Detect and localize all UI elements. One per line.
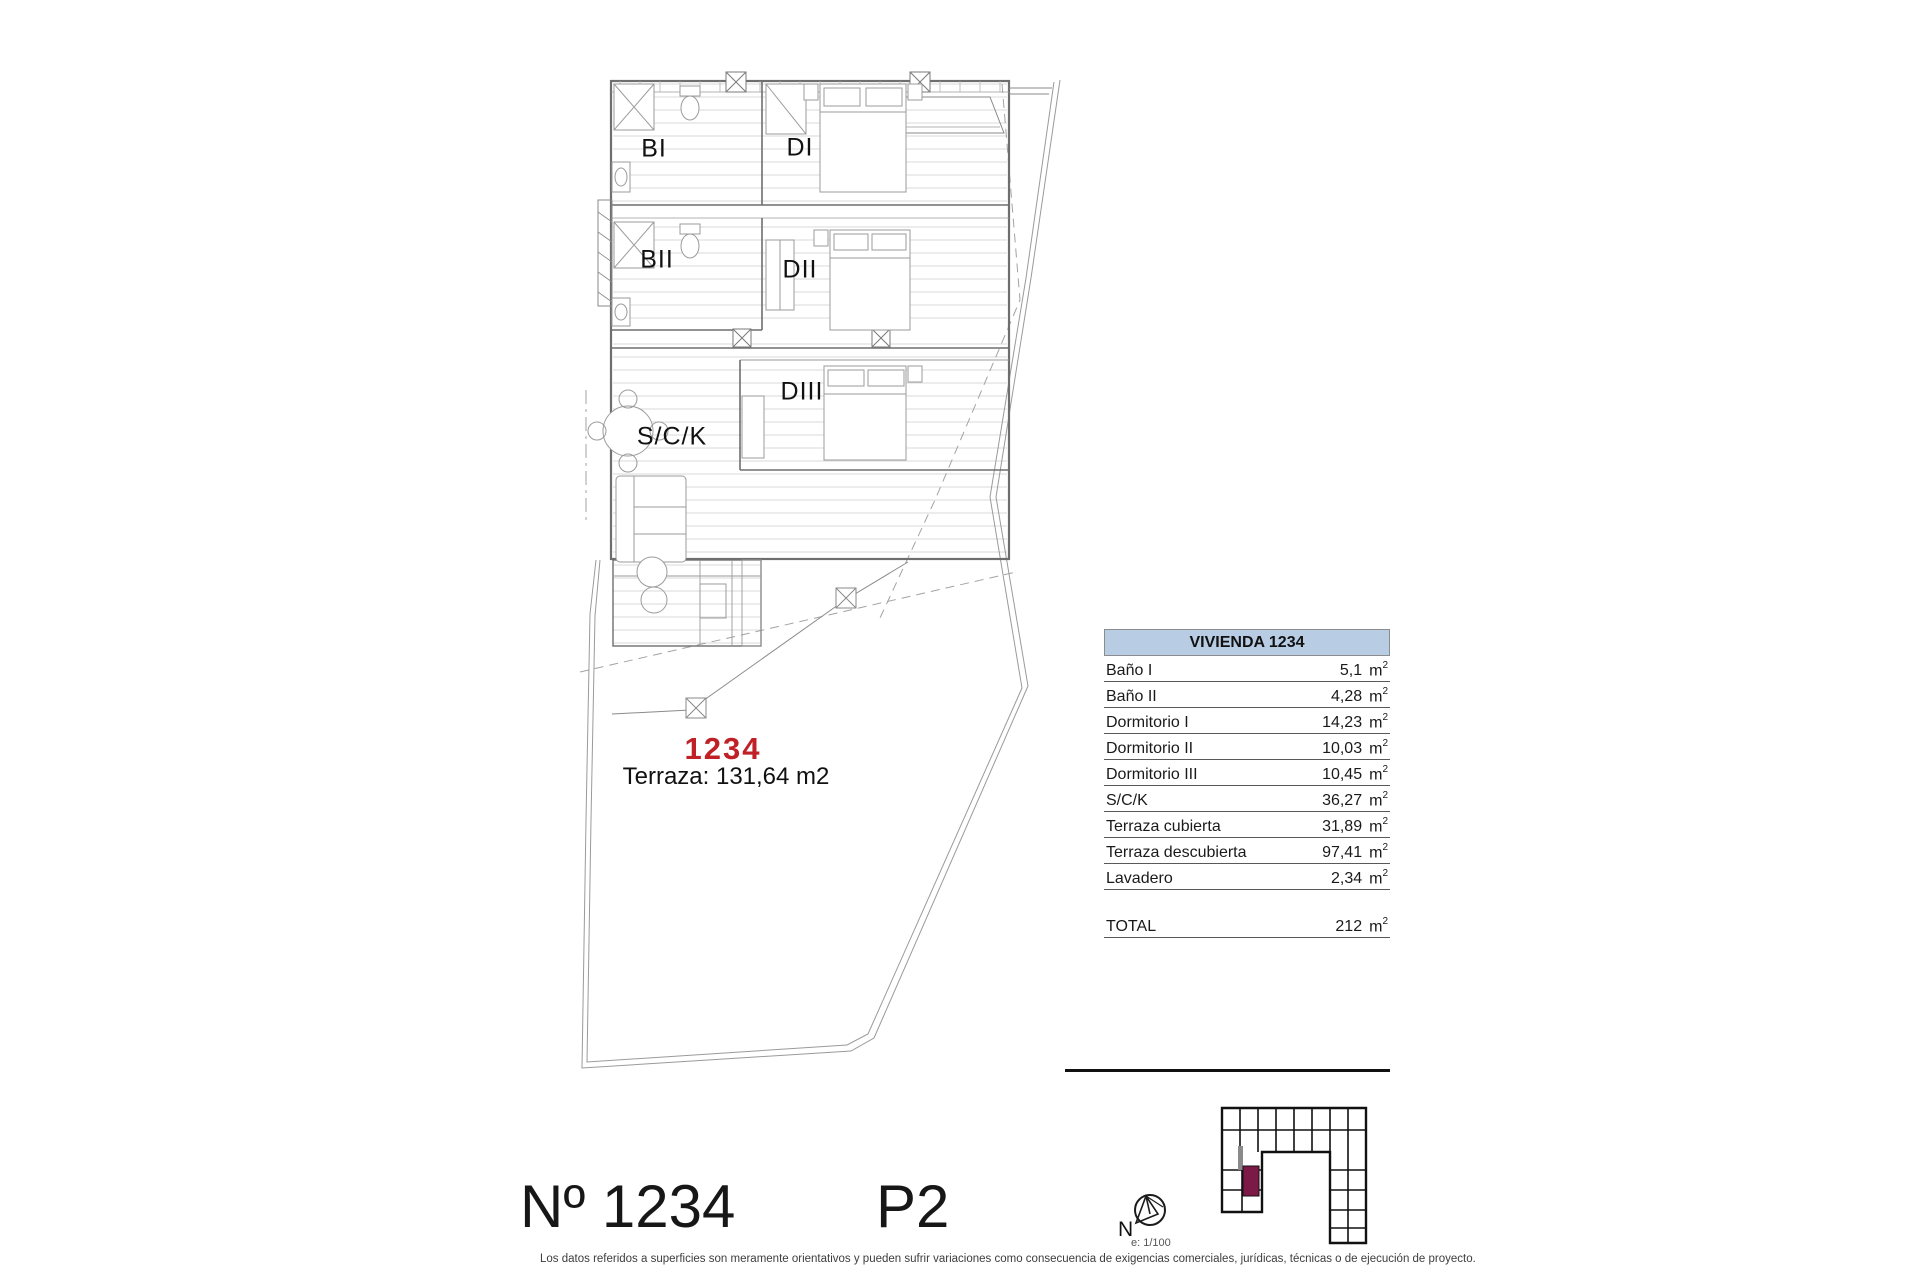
room-label-sck: S/C/K: [637, 423, 707, 452]
divider-rule: [1065, 1069, 1390, 1072]
north-compass-icon: [1135, 1195, 1165, 1225]
total-row: TOTAL 212m2: [1104, 912, 1390, 938]
disclaimer: Los datos referidos a superficies son me…: [540, 1253, 1390, 1265]
room-label-diii: DIII: [781, 378, 824, 407]
room-label-bi: BI: [641, 135, 667, 164]
floor-plan-svg: [0, 0, 1920, 1280]
scale-label: e: 1/100: [1131, 1237, 1171, 1249]
table-row: Dormitorio II 10,03m2: [1104, 734, 1390, 760]
key-plan-corridor: [1238, 1146, 1243, 1170]
unit-number-red: 1234: [685, 731, 762, 767]
table-row: Terraza descubierta 97,41m2: [1104, 838, 1390, 864]
table-row: Dormitorio I 14,23m2: [1104, 708, 1390, 734]
floor-title: P2: [876, 1172, 949, 1241]
table-row: Lavadero 2,34m2: [1104, 864, 1390, 890]
room-label-dii: DII: [783, 256, 818, 285]
room-label-bii: BII: [640, 246, 674, 275]
table-row: S/C/K 36,27m2: [1104, 786, 1390, 812]
key-plan: [1222, 1108, 1366, 1243]
table-row: Dormitorio III 10,45m2: [1104, 760, 1390, 786]
key-plan-highlight: [1243, 1166, 1259, 1196]
table-row: Baño II 4,28m2: [1104, 682, 1390, 708]
table-row: Terraza cubierta 31,89m2: [1104, 812, 1390, 838]
table-gap: [1104, 890, 1390, 912]
unit-title: Nº 1234: [520, 1172, 735, 1241]
room-label-di: DI: [787, 134, 814, 163]
surface-table-header: VIVIENDA 1234: [1104, 629, 1390, 656]
terrace-note: Terraza: 131,64 m2: [623, 763, 830, 791]
surface-table: VIVIENDA 1234 Baño I 5,1m2 Baño II 4,28m…: [1104, 629, 1390, 938]
table-row: Baño I 5,1m2: [1104, 656, 1390, 682]
